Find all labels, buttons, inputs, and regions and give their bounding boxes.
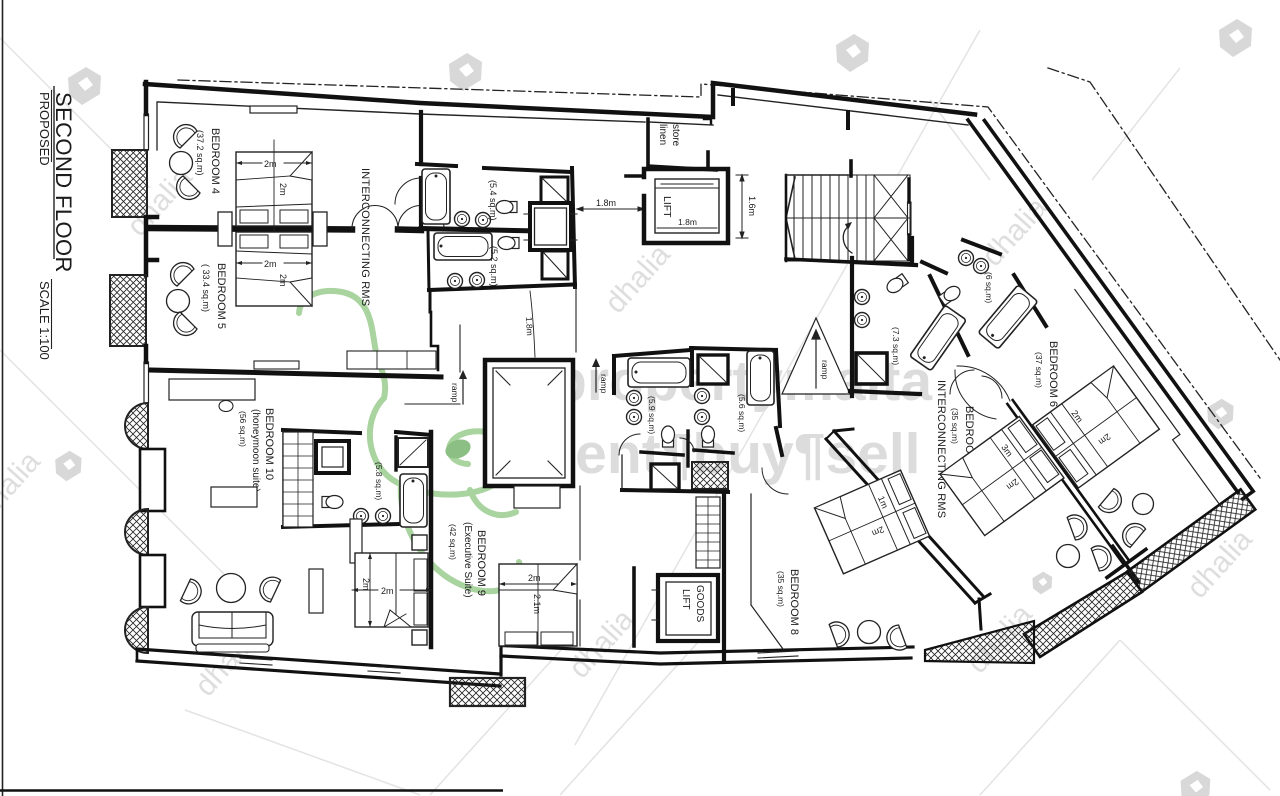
- svg-text:BEDROOM 5: BEDROOM 5: [215, 263, 227, 329]
- svg-text:ramp: ramp: [820, 360, 830, 380]
- svg-text:(honeymoon suite): (honeymoon suite): [250, 409, 261, 492]
- svg-text:2m: 2m: [278, 274, 288, 287]
- svg-text:(7.3 sq.m): (7.3 sq.m): [891, 327, 901, 365]
- svg-text:1.8m: 1.8m: [678, 217, 697, 227]
- svg-text:2m: 2m: [381, 586, 394, 596]
- svg-text:ramp: ramp: [599, 374, 609, 394]
- svg-text:INTERCONNECTING RMS: INTERCONNECTING RMS: [359, 168, 371, 306]
- svg-text:(5.4 sq.m): (5.4 sq.m): [488, 180, 498, 221]
- svg-text:(37.2 sq.m): (37.2 sq.m): [195, 130, 205, 176]
- svg-text:(6 sq.m): (6 sq.m): [984, 272, 994, 303]
- svg-text:GOODS: GOODS: [694, 585, 705, 623]
- svg-text:(37 sq.m): (37 sq.m): [1034, 352, 1044, 388]
- svg-text:2.1m: 2.1m: [532, 594, 542, 614]
- svg-text:BEDROOM 10: BEDROOM 10: [263, 408, 275, 480]
- svg-text:1.8m: 1.8m: [596, 198, 616, 208]
- svg-text:(56 sq.m): (56 sq.m): [238, 411, 248, 447]
- svg-text:store: store: [670, 124, 681, 147]
- svg-text:2m: 2m: [361, 578, 371, 591]
- svg-text:2m: 2m: [278, 183, 288, 196]
- svg-text:1.8m: 1.8m: [524, 317, 535, 336]
- svg-text:PROPOSED: PROPOSED: [37, 92, 52, 166]
- svg-text:ramp: ramp: [450, 383, 460, 403]
- svg-text:LIFT: LIFT: [661, 196, 673, 218]
- svg-text:(Executive Suite): (Executive Suite): [462, 522, 473, 598]
- svg-text:linen: linen: [657, 124, 668, 145]
- svg-text:BEDROOM 8: BEDROOM 8: [788, 569, 800, 635]
- svg-text:( 33.4 sq.m): ( 33.4 sq.m): [201, 264, 211, 312]
- svg-text:BEDROOM 6: BEDROOM 6: [1047, 341, 1059, 407]
- svg-text:2m: 2m: [528, 573, 541, 583]
- svg-text:2m: 2m: [264, 159, 277, 169]
- svg-text:SECOND FLOOR: SECOND FLOOR: [51, 92, 76, 273]
- svg-text:(42 sq.m): (42 sq.m): [448, 524, 458, 560]
- svg-text:(5.8 sq.m): (5.8 sq.m): [374, 462, 384, 500]
- svg-text:SCALE 1:100: SCALE 1:100: [37, 281, 52, 360]
- svg-text:BEDROOM 9: BEDROOM 9: [475, 530, 487, 596]
- svg-text:(5.9 sq.m): (5.9 sq.m): [647, 396, 657, 434]
- svg-text:rent¶buy¶sell: rent¶buy¶sell: [553, 422, 921, 486]
- svg-text:INTERCONNECTING RMS: INTERCONNECTING RMS: [935, 380, 947, 518]
- svg-text:1.6m: 1.6m: [747, 196, 757, 216]
- svg-text:(35 sq.m): (35 sq.m): [776, 571, 786, 607]
- svg-text:2m: 2m: [264, 259, 277, 269]
- svg-text:(35 sq.m): (35 sq.m): [950, 408, 960, 444]
- svg-text:(5.6 sq.m): (5.6 sq.m): [737, 394, 747, 432]
- svg-text:LIFT: LIFT: [680, 589, 691, 610]
- svg-text:(5.2 sq.m): (5.2 sq.m): [489, 246, 499, 287]
- svg-text:BEDROOM 4: BEDROOM 4: [209, 128, 221, 194]
